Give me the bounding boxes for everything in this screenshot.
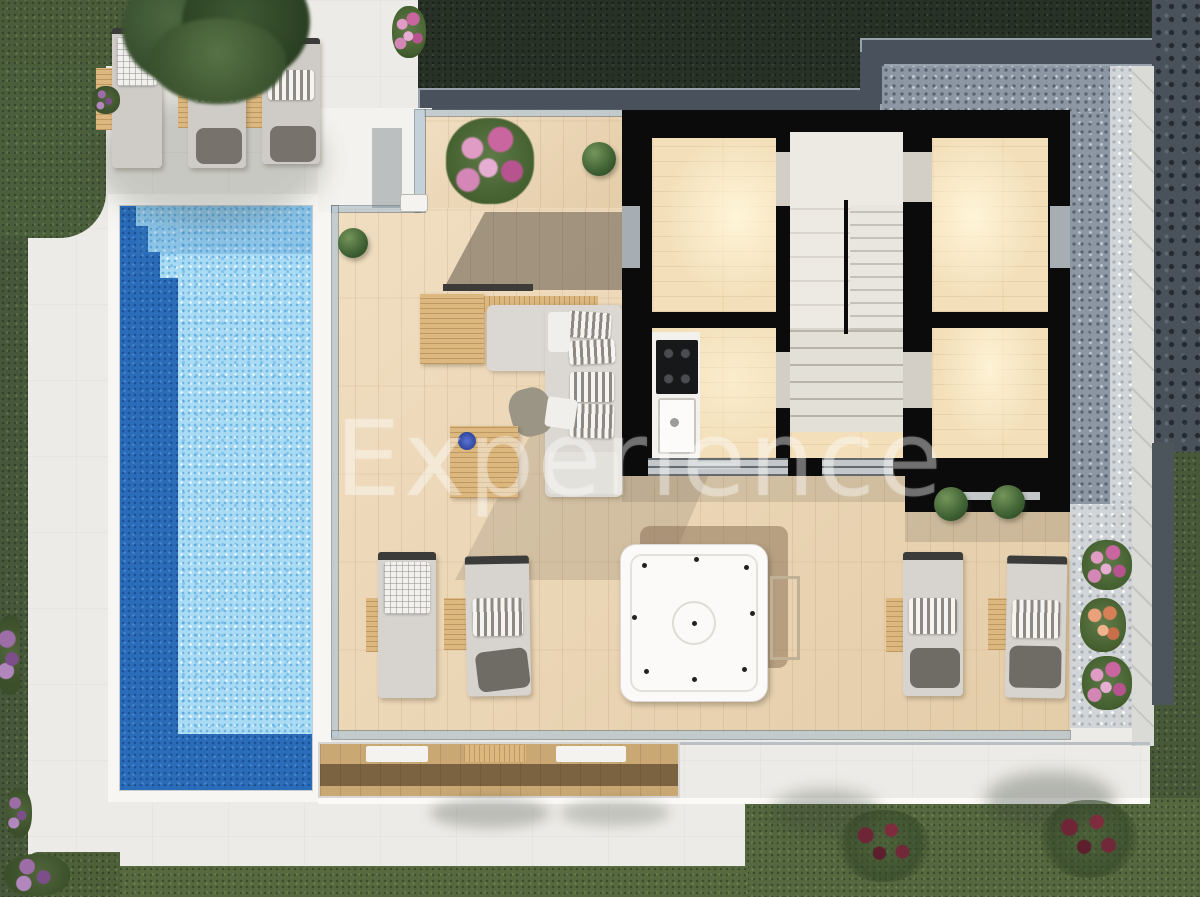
flower-bush-left: [0, 615, 20, 695]
bedroom-1-floor: [652, 138, 776, 312]
terrace-edge-line: [680, 742, 1150, 745]
lounger-frame: [903, 552, 963, 560]
bbq-grill: [400, 194, 428, 212]
flower-bush-left: [4, 854, 70, 896]
lounger-frame: [378, 552, 436, 560]
flower-bush-left: [6, 788, 32, 838]
kitchen-cooktop: [656, 340, 698, 394]
stairwell: [790, 132, 903, 434]
glass-railing-top: [425, 110, 622, 116]
gravel-bed-top: [882, 66, 1134, 114]
staircase-upper-flight: [850, 205, 903, 330]
pool-deep-edge-left: [120, 206, 178, 790]
side-walkway: [1132, 66, 1154, 746]
tree-canopy: [150, 18, 286, 104]
stone-path-right: [1152, 0, 1200, 452]
gravel-bed-right-lit: [1110, 66, 1134, 506]
flower-bush-deck: [446, 118, 534, 204]
terrace-sill: [318, 798, 1150, 804]
bedroom-3-floor: [932, 328, 1048, 460]
garden-bush: [838, 810, 930, 882]
sofa-pillow-striped-2: [568, 339, 615, 365]
room-light-glow: [932, 328, 1048, 460]
flower-bush: [1080, 598, 1126, 652]
lawn-top-center-shaded: [418, 0, 882, 90]
boundary-wall-connector: [860, 52, 884, 104]
potted-plant: [92, 86, 120, 114]
lounger-cushion: [270, 126, 316, 162]
lounger-towel: [1009, 646, 1062, 689]
lounger-cushion: [196, 128, 242, 164]
hot-tub-jets: [692, 621, 697, 626]
lounger-frame: [465, 555, 529, 564]
pool-step-1: [136, 206, 178, 226]
lower-terrace-table: [464, 745, 526, 762]
flower-bush: [1082, 656, 1132, 710]
sofa-pillow-white-1: [548, 312, 570, 352]
window-left: [622, 206, 640, 268]
room-light-glow: [652, 138, 776, 312]
stair-landing-lower: [790, 205, 850, 330]
gravel-bed-right-shaded: [1070, 112, 1114, 506]
stair-landing: [790, 132, 903, 205]
round-shrub: [582, 142, 616, 176]
dark-edge-strip: [1152, 443, 1174, 705]
pool-step-3: [160, 252, 178, 278]
window-right: [1050, 206, 1070, 268]
bedroom-2-floor: [932, 138, 1048, 312]
watermark: Experience: [335, 398, 945, 520]
lounger-towel: [475, 647, 531, 693]
round-shrub: [991, 485, 1025, 519]
boundary-wall-top-right: [860, 38, 1160, 66]
lounger-pillow: [1012, 600, 1061, 639]
bar-counter-edge: [443, 284, 533, 291]
pool-deep-edge-bottom: [120, 734, 312, 790]
room-light-glow: [932, 138, 1048, 312]
lower-terrace-sofa: [366, 746, 428, 762]
lawn-bottom: [28, 866, 748, 897]
flower-bush-top: [392, 6, 426, 58]
garden-bush: [1040, 800, 1138, 878]
lounger-towel: [910, 648, 960, 688]
lawn-top-right-shaded: [862, 0, 1160, 42]
lounger-frame: [1007, 555, 1067, 564]
door-opening: [903, 152, 932, 202]
hot-tub-side-table: [770, 576, 800, 660]
glass-railing-bottom: [332, 731, 1070, 739]
lower-terrace-sofa: [556, 746, 626, 762]
lounger-pillow: [909, 598, 957, 634]
flower-bush: [1082, 540, 1132, 590]
stair-railing: [844, 200, 848, 334]
lounger-pillow: [473, 598, 524, 637]
sun-lounger: [378, 552, 436, 698]
hot-tub: [620, 544, 768, 702]
outdoor-bar-cabinet: [420, 294, 484, 364]
floor-plan-render: Experience: [0, 0, 1200, 897]
door-opening: [776, 152, 790, 206]
pool-step-2: [148, 226, 178, 252]
sofa-pillow-striped-1: [566, 310, 612, 339]
sun-lounger: [1005, 555, 1067, 698]
sun-lounger: [903, 552, 963, 696]
sun-lounger: [465, 555, 531, 696]
round-shrub: [338, 228, 368, 258]
lounger-pillow: [384, 562, 430, 614]
